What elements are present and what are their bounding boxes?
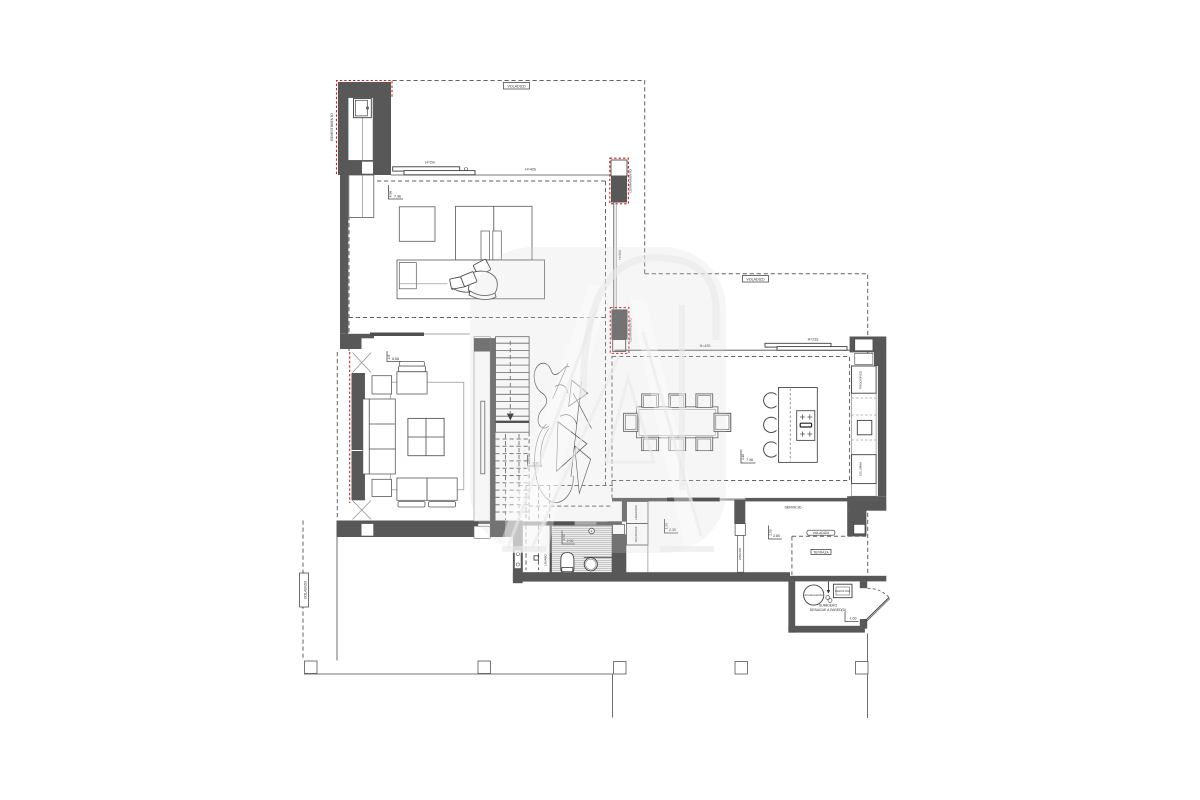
svg-text:SERVICIO: SERVICIO: [784, 506, 801, 510]
svg-text:ACUMULADOR: ACUMULADOR: [804, 594, 823, 597]
svg-text:H=425: H=425: [525, 168, 536, 172]
svg-text:VOLADIZO: VOLADIZO: [746, 278, 764, 282]
svg-text:TERRAZA: TERRAZA: [813, 550, 829, 554]
svg-text:2350x700: 2350x700: [738, 547, 742, 560]
svg-text:H=2m: H=2m: [425, 161, 435, 165]
svg-text:2.05: 2.05: [769, 529, 773, 535]
svg-text:7.38: 7.38: [746, 458, 753, 462]
svg-text:VOLADIZO: VOLADIZO: [507, 85, 525, 89]
svg-text:VOLADIZO: VOLADIZO: [813, 531, 830, 535]
svg-text:FRIGORIFICO: FRIGORIFICO: [859, 370, 863, 389]
svg-text:REVESTIMIENTO: REVESTIMIENTO: [330, 113, 334, 141]
svg-text:7.36: 7.36: [394, 195, 401, 199]
svg-text:HIDROFONT: HIDROFONT: [835, 590, 851, 593]
svg-text:4.8: 4.8: [387, 355, 391, 360]
svg-text:CERRAMIENTO: CERRAMIENTO: [629, 169, 633, 193]
svg-text:1.00: 1.00: [850, 617, 857, 621]
svg-text:DESAGUE A PARED(D): DESAGUE A PARED(D): [810, 608, 847, 612]
svg-text:4.56: 4.56: [389, 191, 393, 198]
svg-text:VOLADIZO: VOLADIZO: [304, 581, 308, 599]
svg-text:4.10: 4.10: [741, 454, 745, 460]
svg-text:COLUMNA: COLUMNA: [859, 462, 863, 476]
svg-text:0.58: 0.58: [392, 357, 399, 361]
svg-text:LAVABO: LAVABO: [544, 554, 548, 566]
svg-text:2.85: 2.85: [773, 534, 780, 538]
svg-text:H=215: H=215: [808, 338, 819, 342]
